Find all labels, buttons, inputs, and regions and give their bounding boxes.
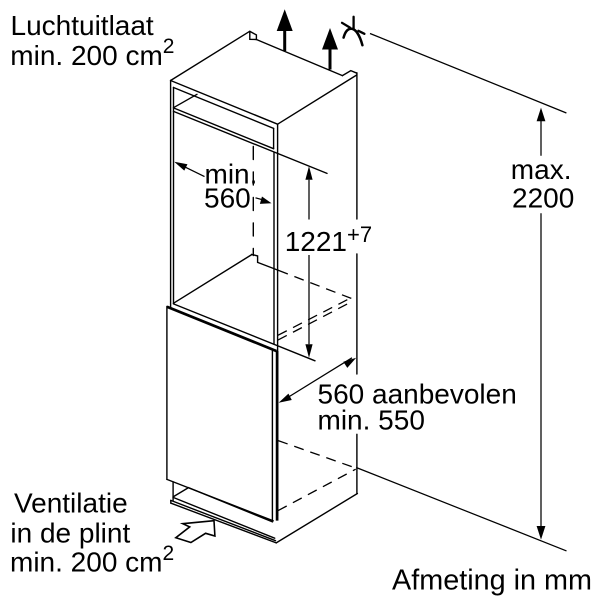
svg-text:1221+7: 1221+7	[285, 222, 372, 257]
svg-text:in de plint: in de plint	[10, 517, 130, 548]
svg-text:min. 200 cm2: min. 200 cm2	[10, 35, 174, 71]
svg-text:min. 200 cm2: min. 200 cm2	[10, 542, 174, 578]
svg-text:Luchtuitlaat: Luchtuitlaat	[11, 10, 154, 41]
svg-text:Afmeting in mm: Afmeting in mm	[392, 565, 592, 597]
svg-text:Ventilatie: Ventilatie	[14, 488, 128, 519]
svg-text:max.: max.	[511, 154, 572, 185]
svg-text:2200: 2200	[512, 183, 574, 214]
svg-text:min. 550: min. 550	[318, 405, 425, 436]
svg-text:560: 560	[204, 182, 251, 213]
